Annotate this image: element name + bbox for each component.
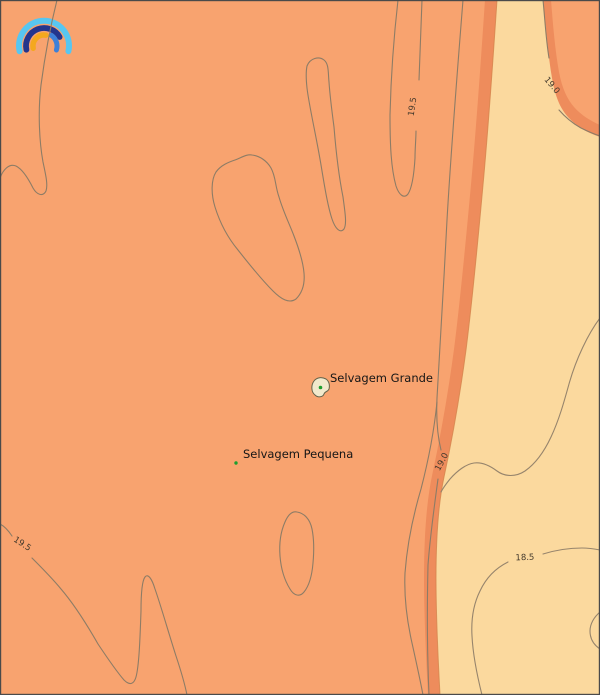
contour-label-18-5: 18.5 [515, 553, 534, 564]
island-label-selvagem-grande: Selvagem Grande [330, 371, 433, 385]
island-label-selvagem-pequena: Selvagem Pequena [243, 447, 353, 461]
island-marker-dot [234, 461, 237, 464]
map-container: 19.5 19.0 19.0 19.5 18.5 Selvagem Grande… [0, 0, 600, 695]
island-marker-dot [319, 386, 323, 390]
contour-map-canvas: 19.5 19.0 19.0 19.5 18.5 Selvagem Grande… [0, 0, 600, 695]
